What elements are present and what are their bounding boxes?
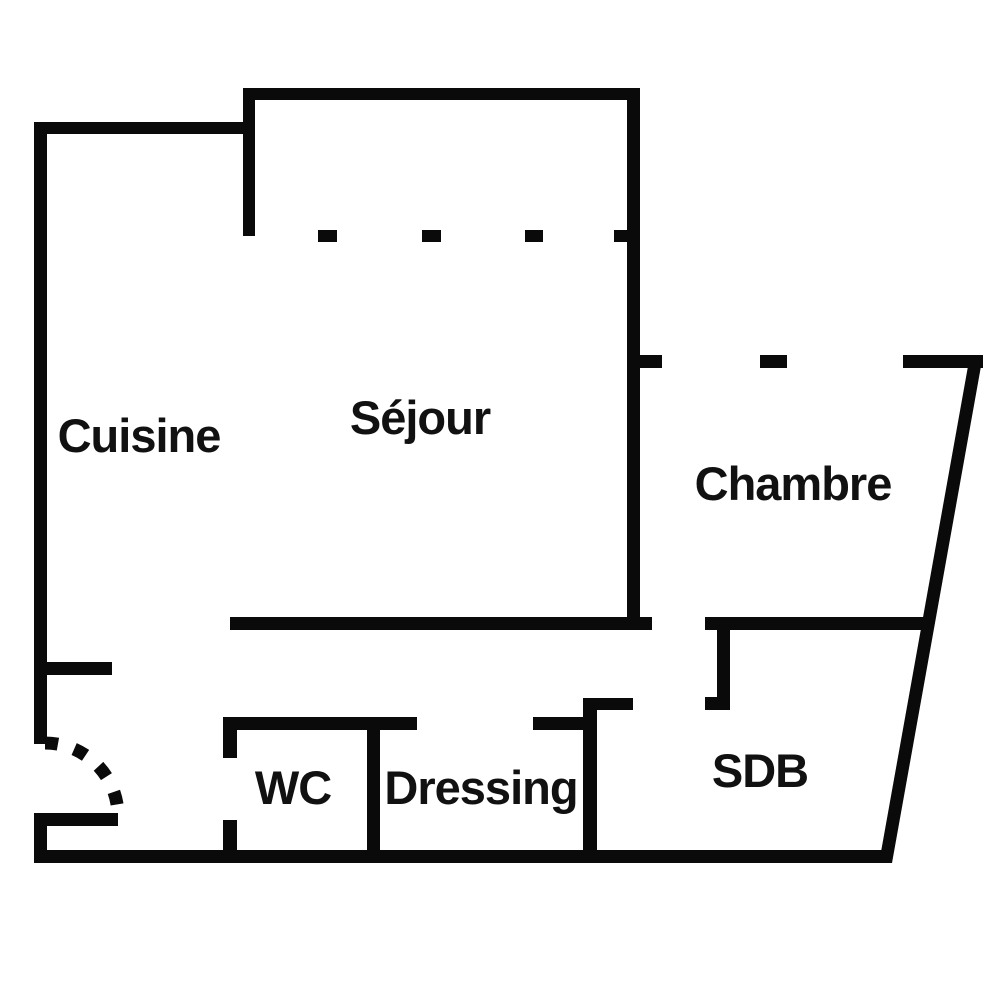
wall-sejour-right	[627, 88, 640, 630]
wall-sejour-top	[243, 88, 639, 100]
floor-plan-canvas: Cuisine Séjour Chambre WC Dressing SDB	[0, 0, 1000, 1000]
wall-wc-dressing-divider	[367, 717, 380, 863]
wall-outer-left	[34, 122, 47, 744]
partition-dash-3	[525, 230, 543, 242]
wall-sejour-bottom	[230, 617, 652, 630]
wall-sdb-entry-tick	[705, 697, 717, 710]
room-label-sejour: Séjour	[350, 391, 491, 444]
wall-wc-left-upper	[223, 717, 237, 758]
room-label-cuisine: Cuisine	[58, 409, 221, 462]
floor-plan-drawing: Cuisine Séjour Chambre WC Dressing SDB	[0, 0, 1000, 1000]
partition-end-tick	[614, 230, 627, 242]
room-label-sdb: SDB	[712, 744, 808, 797]
wall-chambre-top-dash	[760, 355, 787, 368]
partition-dash-2	[422, 230, 441, 242]
wall-sejour-left	[243, 88, 255, 236]
wall-chambre-bottom	[705, 617, 930, 630]
wall-sdb-entry-vertical	[717, 630, 730, 710]
partition-dash-1	[318, 230, 337, 242]
wall-cuisine-top	[34, 122, 243, 134]
room-label-dressing: Dressing	[384, 761, 577, 814]
room-label-wc: WC	[255, 761, 331, 814]
entrance-door-swing-arc	[45, 743, 118, 816]
wall-outer-right-slanted	[879, 355, 983, 863]
wall-wc-top	[223, 717, 417, 730]
room-label-chambre: Chambre	[695, 457, 892, 510]
wall-dressing-top-right	[533, 717, 597, 730]
room-labels: Cuisine Séjour Chambre WC Dressing SDB	[58, 391, 892, 814]
wall-dressing-sdb-jut	[597, 698, 633, 710]
wall-chambre-top-left	[640, 355, 662, 368]
wall-cuisine-bottom-partial	[47, 662, 112, 675]
wall-outer-bottom	[34, 850, 892, 863]
